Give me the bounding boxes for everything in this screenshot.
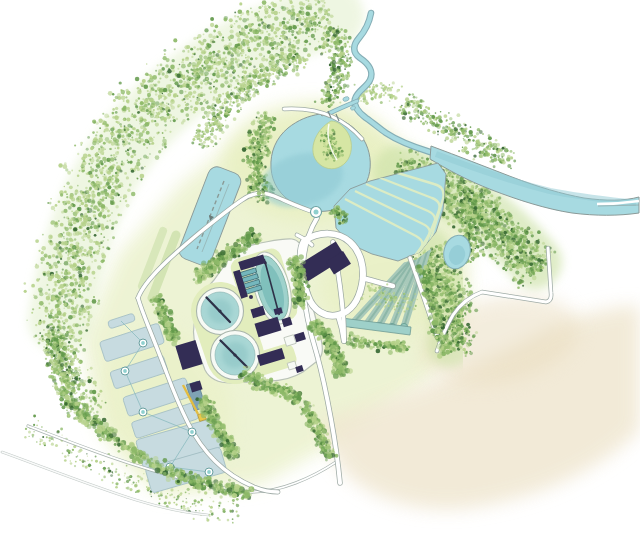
- transfer-node: [188, 428, 196, 436]
- transfer-node: [205, 468, 213, 476]
- pond-outlet-node: [311, 207, 322, 218]
- site-plan: [0, 0, 640, 539]
- clarifier-1: [197, 288, 244, 335]
- transfer-node: [139, 339, 147, 347]
- transfer-node: [139, 408, 147, 416]
- transfer-node: [121, 367, 129, 375]
- site-plan-map: [0, 0, 640, 539]
- plant-structure-dot: [249, 295, 253, 299]
- stream-pool: [342, 96, 349, 102]
